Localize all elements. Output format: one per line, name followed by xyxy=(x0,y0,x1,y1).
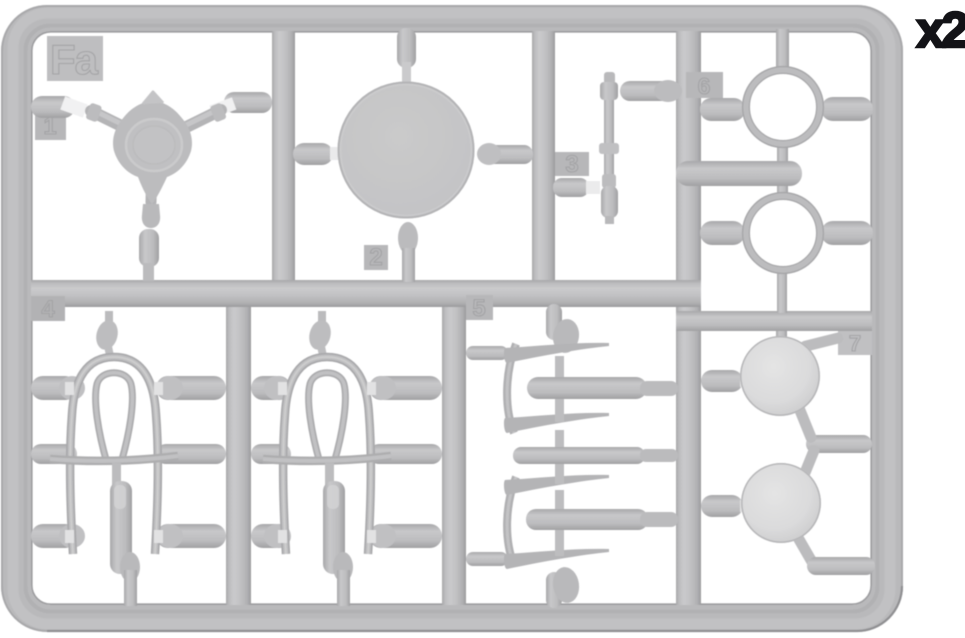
svg-text:7: 7 xyxy=(849,331,861,356)
svg-text:6: 6 xyxy=(698,73,711,99)
svg-text:5: 5 xyxy=(472,295,485,322)
svg-text:4: 4 xyxy=(41,296,55,323)
svg-text:x2: x2 xyxy=(917,2,965,58)
svg-text:Fa: Fa xyxy=(50,36,99,83)
svg-text:2: 2 xyxy=(369,244,382,271)
svg-text:3: 3 xyxy=(565,151,578,178)
